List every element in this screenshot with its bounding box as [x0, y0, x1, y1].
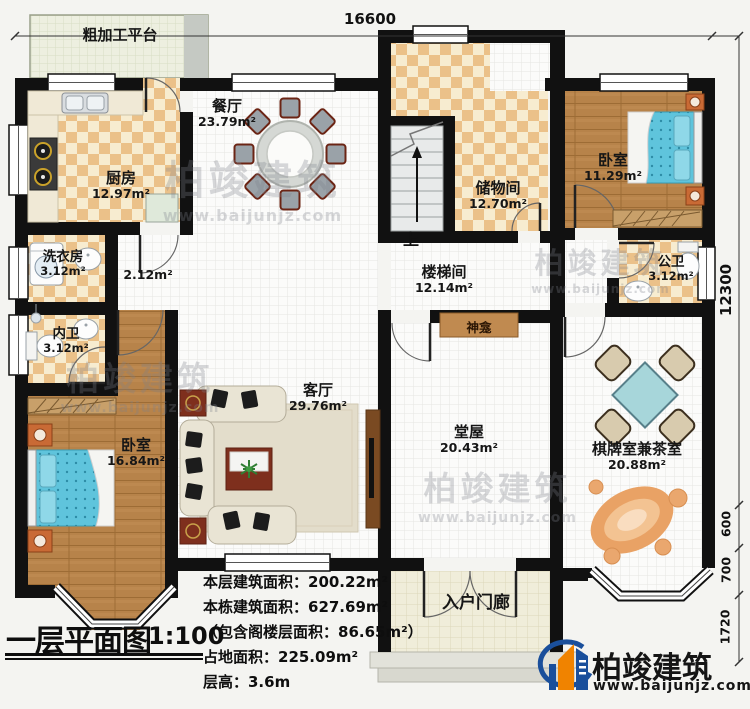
floor-storage-landing [490, 43, 550, 91]
stat-land-area: 占地面积：225.09m² [203, 646, 423, 671]
dimension-right-700: 700 [719, 557, 734, 583]
public-sink [624, 281, 652, 301]
dimension-right-600: 600 [719, 511, 734, 537]
public-toilet-tank [678, 242, 698, 252]
floor-bedroom-sw-vestibule [118, 310, 165, 396]
stair-up-label: 上 [403, 226, 419, 250]
staircase [391, 122, 443, 231]
room-label-main-hall: 堂屋 20.43m² [440, 424, 498, 455]
floor-kitchen-doornook [143, 78, 180, 112]
title-underline [5, 653, 203, 660]
platform-column [184, 15, 208, 78]
room-name: 客厅 [289, 382, 347, 399]
room-label-dining: 餐厅 23.79m² [198, 98, 256, 129]
area-stats: 本层建筑面积：200.22m² 本栋建筑面积：627.69m² （包含阁楼层面积… [203, 571, 423, 696]
bed-ne-pillow-2 [674, 150, 690, 180]
room-name: 厨房 [92, 170, 150, 187]
end-table-bottom [180, 518, 206, 544]
room-name: 储物间 [469, 180, 527, 197]
end-table-top [180, 390, 206, 416]
floor-ne-corridor [565, 240, 607, 303]
room-label-chess-tea: 棋牌室兼茶室 20.88m² [592, 441, 682, 472]
room-name: 公卫 [648, 255, 693, 270]
room-area: 3.12m² [40, 265, 85, 278]
room-name: 洗衣房 [40, 250, 85, 265]
stat-building-area: 本栋建筑面积：627.69m² [203, 596, 423, 621]
room-name: 卧室 [584, 152, 642, 169]
room-area: 3.12m² [43, 342, 88, 355]
room-label-platform: 粗加工平台 [82, 27, 157, 44]
dimension-top: 16600 [344, 10, 396, 28]
bed-sw-pillow-1 [40, 455, 56, 487]
room-name: 堂屋 [440, 424, 498, 441]
room-label-hallway: 2.12m² [123, 268, 172, 282]
room-area: 20.88m² [592, 458, 682, 472]
sofa-top [196, 386, 286, 422]
room-label-laundry: 洗衣房 3.12m² [40, 250, 85, 278]
room-name: 楼梯间 [415, 264, 473, 281]
room-label-ensuite: 内卫 3.12m² [43, 327, 88, 355]
room-label-living: 客厅 29.76m² [289, 382, 347, 413]
floor-storage-top [391, 43, 490, 91]
room-label-storage: 储物间 12.70m² [469, 180, 527, 211]
room-area: 23.79m² [198, 115, 256, 129]
bed-ne-headboard [694, 112, 702, 183]
room-area: 11.29m² [584, 169, 642, 183]
dimension-right-main: 12300 [717, 264, 735, 316]
room-area: 20.43m² [440, 441, 498, 455]
stat-floor-area: 本层建筑面积：200.22m² [203, 571, 423, 596]
dimension-right-1720: 1720 [718, 610, 733, 645]
room-label-shrine: 神龛 [466, 317, 491, 336]
room-label-stair-hall: 楼梯间 12.14m² [415, 264, 473, 295]
room-name: 神龛 [466, 320, 491, 335]
room-area: 29.76m² [289, 399, 347, 413]
room-area: 12.70m² [469, 197, 527, 211]
bed-sw-headboard [28, 450, 36, 526]
floor-storage-mid [391, 91, 548, 116]
stat-floor-height: 层高：3.6m [203, 671, 423, 696]
room-name: 棋牌室兼茶室 [592, 441, 682, 458]
room-area: 12.97m² [92, 187, 150, 201]
living-room-set [180, 386, 380, 544]
kitchen-fridge [146, 194, 178, 222]
room-label-bedroom-sw: 卧室 16.84m² [107, 437, 165, 468]
sofa-bottom [208, 506, 296, 544]
room-area: 12.14m² [415, 281, 473, 295]
ensuite-shower-head [31, 313, 41, 323]
bed-sw-pillow-2 [40, 491, 56, 523]
logo-website: www.baijunjz.com [593, 678, 750, 694]
floor-storage-main [455, 116, 548, 231]
room-label-kitchen: 厨房 12.97m² [92, 170, 150, 201]
bed-ne-pillow-1 [674, 116, 690, 146]
room-label-public-bath: 公卫 3.12m² [648, 255, 693, 283]
stat-attic-area: （包含阁楼层面积：86.65m²） [203, 621, 423, 646]
room-name: 卧室 [107, 437, 165, 454]
floorplan-canvas: 柏竣建筑 www.baijunjz.com 柏竣建筑 www.baijunjz.… [0, 0, 750, 709]
room-area: 16.84m² [107, 454, 165, 468]
room-name: 入户门廊 [442, 594, 510, 613]
room-name: 餐厅 [198, 98, 256, 115]
tv [369, 438, 374, 498]
room-label-bedroom-ne: 卧室 11.29m² [584, 152, 642, 183]
room-area: 2.12m² [123, 268, 172, 282]
floor-platform [30, 15, 208, 78]
ensuite-toilet-tank [26, 332, 37, 360]
room-name: 粗加工平台 [82, 27, 157, 44]
room-name: 内卫 [43, 327, 88, 342]
room-area: 3.12m² [648, 270, 693, 283]
room-label-porch: 入户门廊 [442, 594, 510, 613]
